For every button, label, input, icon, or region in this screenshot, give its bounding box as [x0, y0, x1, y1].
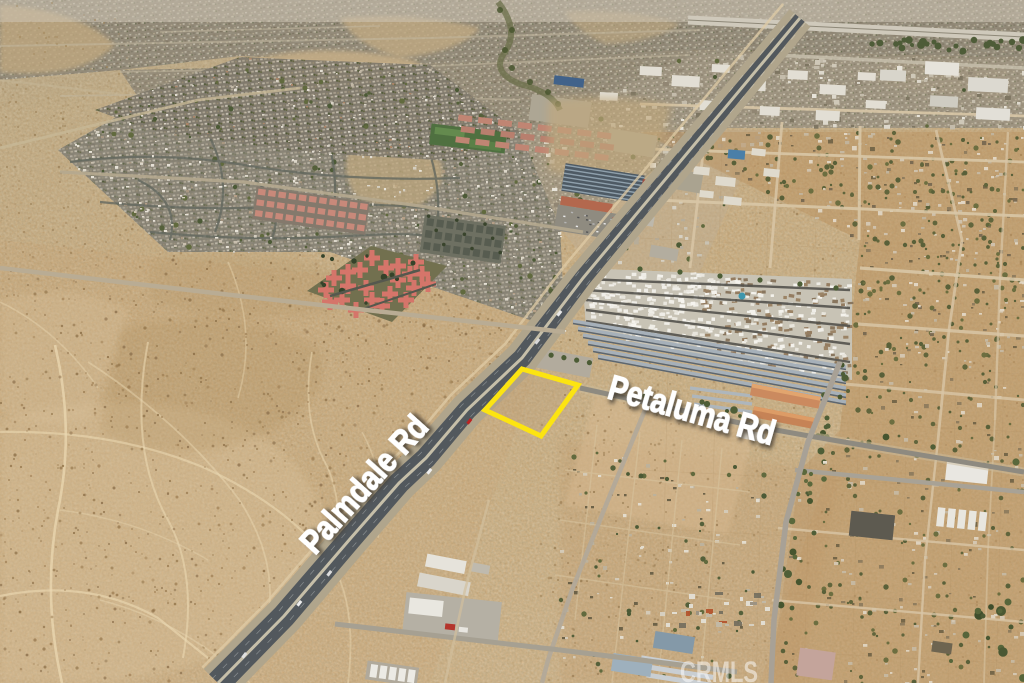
svg-text:CRMLS: CRMLS	[680, 656, 758, 683]
